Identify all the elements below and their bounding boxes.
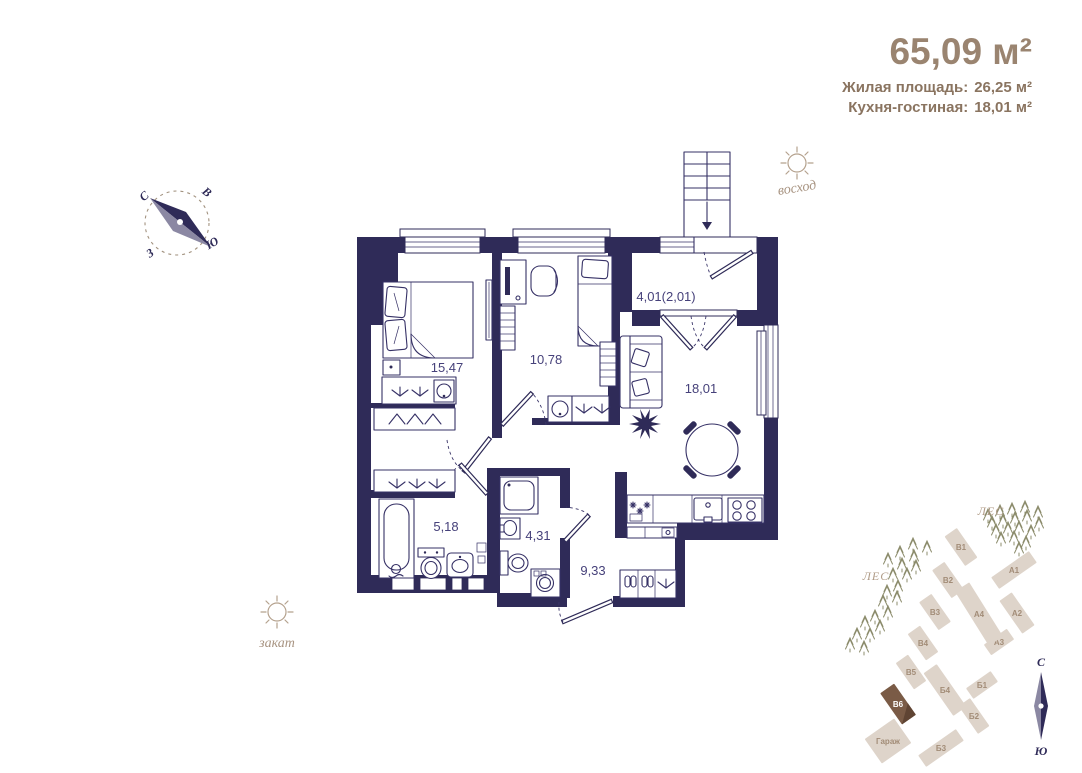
pine-tree-icon [861,616,870,630]
pine-tree-icon [1015,521,1024,535]
kitchen-sink-icon [694,498,722,522]
header: 65,09 м² Жилая площадь:26,25 м² Кухня-го… [841,31,1032,116]
room-label-hall: 9,33 [580,563,605,578]
shaft-box [478,556,485,563]
pine-tree-icon [903,568,912,582]
pine-tree-icon [898,558,907,572]
pine-tree-icon [860,641,869,655]
washing-machine-icon [531,569,560,597]
room-label-balcony: 4,01(2,01) [636,289,695,304]
building-Б1: Б1 [966,671,998,699]
door-balcony-french [660,310,737,350]
pine-tree-icon [1015,542,1024,556]
pine-tree-icon [896,546,905,560]
room-label-bedroom: 15,47 [431,360,464,375]
living-room-furniture [620,336,742,480]
building-В4: В4 [908,626,939,661]
child-room-furniture [500,256,616,422]
site-compass: С Ю [1034,655,1048,758]
shaft-box [477,543,486,552]
site-plan: В1В2В3В4В5В6А1А2А3А4Б1Б2Б4Б3Гараж ЛЕС ЛЕ… [846,501,1049,767]
sun-icon [261,596,293,628]
sunset: закат [258,596,295,651]
compass-east: В [199,183,215,200]
building-А2: А2 [999,592,1034,633]
building-А1: А1 [991,551,1037,589]
shower-icon [500,477,538,514]
building-label-В6: В6 [893,700,904,709]
room-label-child: 10,78 [530,352,563,367]
sun-icon [781,147,813,179]
building-label-А2: А2 [1012,609,1023,618]
window-sill [513,229,610,237]
pine-tree-icon [879,595,888,609]
compass-west: З [143,246,157,262]
pine-tree-icon [1010,531,1019,545]
door-bedroom [447,437,491,473]
floorplan-page: 65,09 м² Жилая площадь:26,25 м² Кухня-го… [0,0,1082,773]
kitchen-area-line: Кухня-гостиная:18,01 м² [848,99,1032,116]
window-bedroom [405,237,480,253]
wc-toilet-icon [500,551,528,575]
compass-pivot [177,219,183,225]
sunrise: восход [777,147,818,199]
compass-south: Ю [202,234,221,253]
living-area-line: Жилая площадь:26,25 м² [841,79,1032,96]
window-child [518,237,605,253]
pine-tree-icon [846,638,855,652]
sunrise-label: восход [777,178,818,199]
toilet-icon [418,548,444,579]
building-label-Б3: Б3 [936,744,947,753]
pine-tree-icon [853,628,862,642]
pine-tree-icon [884,606,893,620]
building-В5: В5 [896,655,927,690]
pine-tree-icon [884,553,893,567]
site-compass-pivot [1038,703,1043,708]
building-В1: В1 [945,528,978,566]
pine-tree-icon [909,538,918,552]
room-label-bath: 5,18 [433,519,458,534]
wardrobe-hangers [382,377,456,404]
pine-tree-icon [1004,522,1013,536]
building-label-А4: А4 [974,610,985,619]
service-shaft [452,578,462,590]
forest-label-1: ЛЕС [977,504,1004,518]
site-buildings: В1В2В3В4В5В6А1А2А3А4Б1Б2Б4Б3Гараж [865,528,1037,767]
pine-tree-icon [876,620,885,634]
bookshelf [500,306,515,350]
building-Б4: Б4 [924,664,967,716]
floor-plan: 15,47 10,78 4,01(2,01) 18,01 5,18 4,31 9… [357,152,778,624]
balcony-glazing [660,237,757,253]
total-area-title: 65,09 м² [889,31,1032,72]
pine-tree-icon [894,580,903,594]
building-label-В4: В4 [918,639,929,648]
pillow [632,378,650,396]
pine-tree-icon [866,628,875,642]
pine-tree-icon [1027,525,1036,539]
building-label-В3: В3 [930,608,941,617]
double-bed [383,282,473,358]
building-label-В2: В2 [943,576,954,585]
building-label-А1: А1 [1009,566,1020,575]
hall-closet [374,470,455,492]
stairs-direction-arrow [702,222,712,230]
single-bed [578,256,612,346]
dining-table [682,420,742,480]
sink-icon [447,553,473,577]
stove-icon [728,498,762,522]
sofa [620,336,662,408]
pine-tree-icon [1023,510,1032,524]
building-label-В5: В5 [906,668,917,677]
sunset-label: закат [258,636,295,651]
door-terrace-entry [704,250,753,278]
building-Гараж: Гараж [865,718,912,763]
service-shaft [420,578,446,590]
window-sill [400,229,485,237]
bathroom-furniture [379,499,486,579]
desk-workplace [500,260,558,304]
plant-icon [629,409,661,439]
compass-north: С [136,187,152,204]
building-label-В1: В1 [956,543,967,552]
building-А4: А4 [955,582,1003,645]
pine-tree-icon [912,560,921,574]
pine-tree-icon [997,532,1006,546]
pine-tree-icon [1035,517,1044,531]
building-label-Б2: Б2 [969,712,980,721]
room-label-wc: 4,31 [525,528,550,543]
pine-tree-icon [889,568,898,582]
monitor-icon [505,267,510,295]
room-label-living: 18,01 [685,381,718,396]
counter-return [627,527,677,538]
building-label-Гараж: Гараж [876,737,900,746]
building-label-Б1: Б1 [977,681,988,690]
pine-tree-icon [893,591,902,605]
stairs [684,152,730,237]
pine-tree-icon [871,610,880,624]
door-wc [564,507,591,542]
child-closet [548,396,610,422]
pine-tree-icon [923,541,932,555]
closet-shelf [374,408,455,430]
building-label-Б4: Б4 [940,686,951,695]
bathtub [379,499,414,578]
site-compass-north: С [1037,655,1046,669]
compass-rose: С В Ю З [136,183,221,261]
wc-sink-icon [500,518,520,539]
site-compass-south: Ю [1034,744,1048,758]
nightstand-knob [390,366,393,369]
pine-tree-icon [1022,536,1031,550]
pine-tree-icon [1034,506,1043,520]
service-shaft [392,578,414,590]
building-Б3: Б3 [918,729,964,767]
building-В3: В3 [919,594,951,630]
service-shaft [468,578,484,590]
dresser [600,342,616,386]
desk-chair [531,266,556,296]
forest-label-2: ЛЕС [862,569,889,583]
floorplan-canvas: 65,09 м² Жилая площадь:26,25 м² Кухня-го… [0,0,1082,773]
radiator [757,331,766,415]
hallway-furniture [620,570,676,598]
building-В6: В6 [880,684,916,725]
